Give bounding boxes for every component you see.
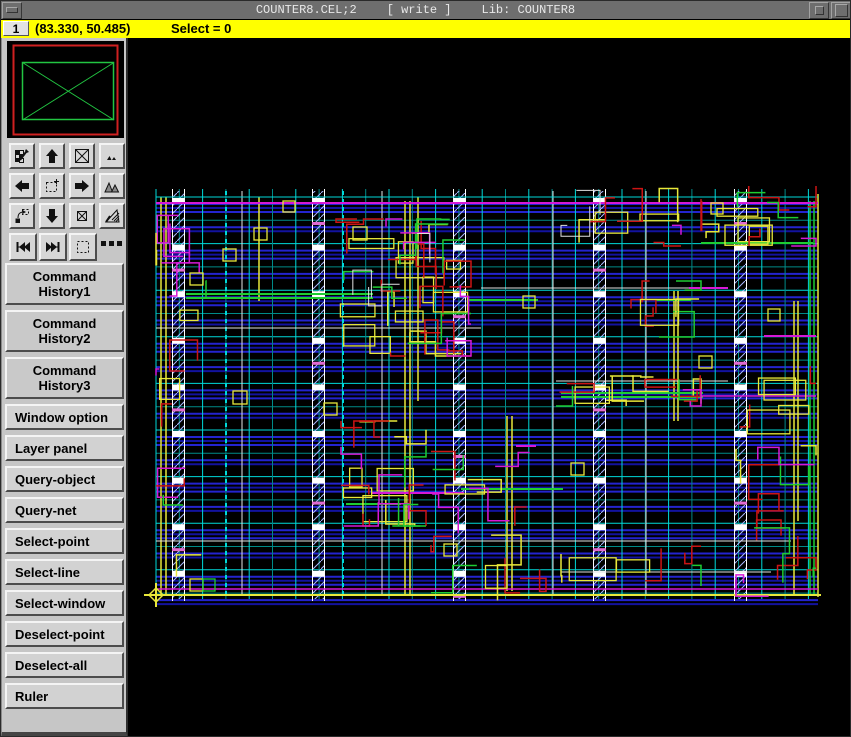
sidebar-button-layer-panel[interactable]: Layer panel <box>5 435 124 461</box>
minimize-icon <box>815 6 824 15</box>
prev-view-button[interactable] <box>9 233 37 261</box>
arrow-right-icon <box>73 177 91 195</box>
select-region-button[interactable] <box>69 233 97 261</box>
sidebar-button-deselect-all[interactable]: Deselect-all <box>5 652 124 678</box>
prev-icon <box>14 238 32 256</box>
overview-viewport-icon <box>7 41 124 138</box>
hatch-corner-button[interactable] <box>99 203 125 229</box>
pan-down-button[interactable] <box>39 203 65 229</box>
checker-pencil-icon <box>13 147 31 165</box>
peak-large-button[interactable] <box>99 173 125 199</box>
sidebar-button-query-net[interactable]: Query-net <box>5 497 124 523</box>
window-title: COUNTER8.CEL;2 [ write ] Lib: COUNTER8 <box>23 3 808 17</box>
sidebar-button-ruler[interactable]: Ruler <box>5 683 124 709</box>
application-window: COUNTER8.CEL;2 [ write ] Lib: COUNTER8 1… <box>0 0 851 737</box>
sidebar-button-deselect-point[interactable]: Deselect-point <box>5 621 124 647</box>
maximize-button[interactable] <box>831 2 851 19</box>
minimize-button[interactable] <box>809 2 829 19</box>
selection-count: Select = 0 <box>171 21 231 37</box>
maximize-icon <box>835 4 848 17</box>
view-toolbar <box>2 141 129 263</box>
sidebar-button-select-window[interactable]: Select-window <box>5 590 124 616</box>
edit-region-button[interactable] <box>9 143 35 169</box>
next-view-button[interactable] <box>39 233 67 261</box>
arrow-down-icon <box>43 207 61 225</box>
write-status-badge: [ write ] <box>387 3 452 17</box>
arrow-left-icon <box>13 177 31 195</box>
dotted-plus-icon <box>43 177 61 195</box>
sidebar-button-command-history1[interactable]: Command History1 <box>5 263 124 305</box>
pan-right-button[interactable] <box>69 173 95 199</box>
status-bar: 1 (83.330, 50.485) Select = 0 <box>1 20 851 38</box>
cell-name: COUNTER8.CEL;2 <box>256 3 357 17</box>
command-panel: Command History1Command History2Command … <box>5 263 125 714</box>
sidebar: Command History1Command History2Command … <box>1 38 128 737</box>
sidebar-button-command-history2[interactable]: Command History2 <box>5 310 124 352</box>
library-name: Lib: COUNTER8 <box>482 3 576 17</box>
overview-navigator[interactable] <box>7 41 124 138</box>
box-x-small-icon <box>73 207 91 225</box>
sidebar-button-select-line[interactable]: Select-line <box>5 559 124 585</box>
peak-small-button[interactable] <box>99 143 125 169</box>
pan-up-button[interactable] <box>39 143 65 169</box>
sidebar-button-command-history3[interactable]: Command History3 <box>5 357 124 399</box>
zoom-fit-button[interactable] <box>69 143 95 169</box>
window-menu-icon <box>6 7 18 13</box>
next-icon <box>44 238 62 256</box>
more-options[interactable] <box>101 241 122 246</box>
zoom-box-button[interactable] <box>69 203 95 229</box>
layout-canvas[interactable] <box>129 38 851 737</box>
arrow-up-icon <box>43 147 61 165</box>
peaks-large-icon <box>103 177 121 195</box>
zoom-out-icon <box>13 207 31 225</box>
pan-left-button[interactable] <box>9 173 35 199</box>
cursor-coordinates: (83.330, 50.485) <box>35 21 130 37</box>
zoom-out-button[interactable] <box>9 203 35 229</box>
hatch-check-icon <box>103 207 121 225</box>
titlebar[interactable]: COUNTER8.CEL;2 [ write ] Lib: COUNTER8 <box>1 1 851 20</box>
sidebar-button-select-point[interactable]: Select-point <box>5 528 124 554</box>
peaks-small-icon <box>103 147 121 165</box>
box-x-icon <box>73 147 91 165</box>
sidebar-button-window-option[interactable]: Window option <box>5 404 124 430</box>
zoom-in-window-button[interactable] <box>39 173 65 199</box>
sidebar-button-query-object[interactable]: Query-object <box>5 466 124 492</box>
workspace-number[interactable]: 1 <box>3 21 29 36</box>
dotted-box-icon <box>74 238 92 256</box>
window-menu-button[interactable] <box>2 2 22 19</box>
